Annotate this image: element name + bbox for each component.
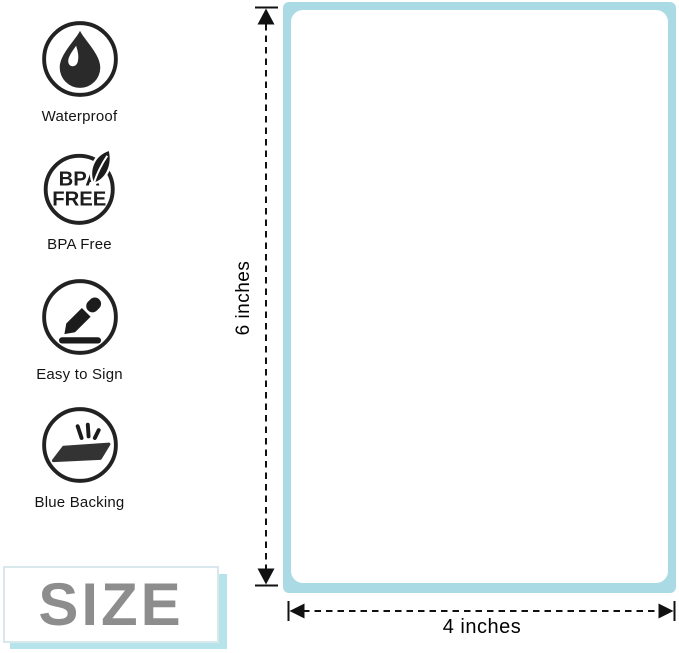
feature-label: Blue Backing xyxy=(2,494,157,511)
feature-easy-to-sign: Easy to Sign xyxy=(2,278,157,383)
width-arrow-right-head xyxy=(659,604,674,619)
bpa-free-badge-icon: BPA FREE xyxy=(41,148,119,226)
height-arrow-up-head xyxy=(258,9,275,25)
feature-label: Easy to Sign xyxy=(2,366,157,383)
feature-label: Waterproof xyxy=(2,108,157,125)
height-dimension-label: 6 inches xyxy=(233,228,255,368)
size-badge-label: SIZE xyxy=(38,575,183,635)
bpa-badge-line2: FREE xyxy=(52,189,106,211)
water-drop-icon xyxy=(41,20,119,98)
height-arrow-down-head xyxy=(258,569,275,585)
label-backing-sheet xyxy=(283,2,676,593)
pencil-sign-icon xyxy=(41,278,119,356)
feature-blue-backing: Blue Backing xyxy=(2,406,157,511)
width-arrow-left-head xyxy=(290,604,305,619)
product-size-infographic: Waterproof BPA FREE BPA Free Easy to Sig… xyxy=(0,0,679,653)
feature-waterproof: Waterproof xyxy=(2,20,157,125)
feature-label: BPA Free xyxy=(2,236,157,253)
feature-bpa-free: BPA FREE BPA Free xyxy=(2,148,157,253)
size-badge: SIZE xyxy=(3,566,219,643)
width-dimension-label: 4 inches xyxy=(412,616,552,639)
label-sheet-icon xyxy=(41,406,119,484)
label-face xyxy=(291,10,668,583)
